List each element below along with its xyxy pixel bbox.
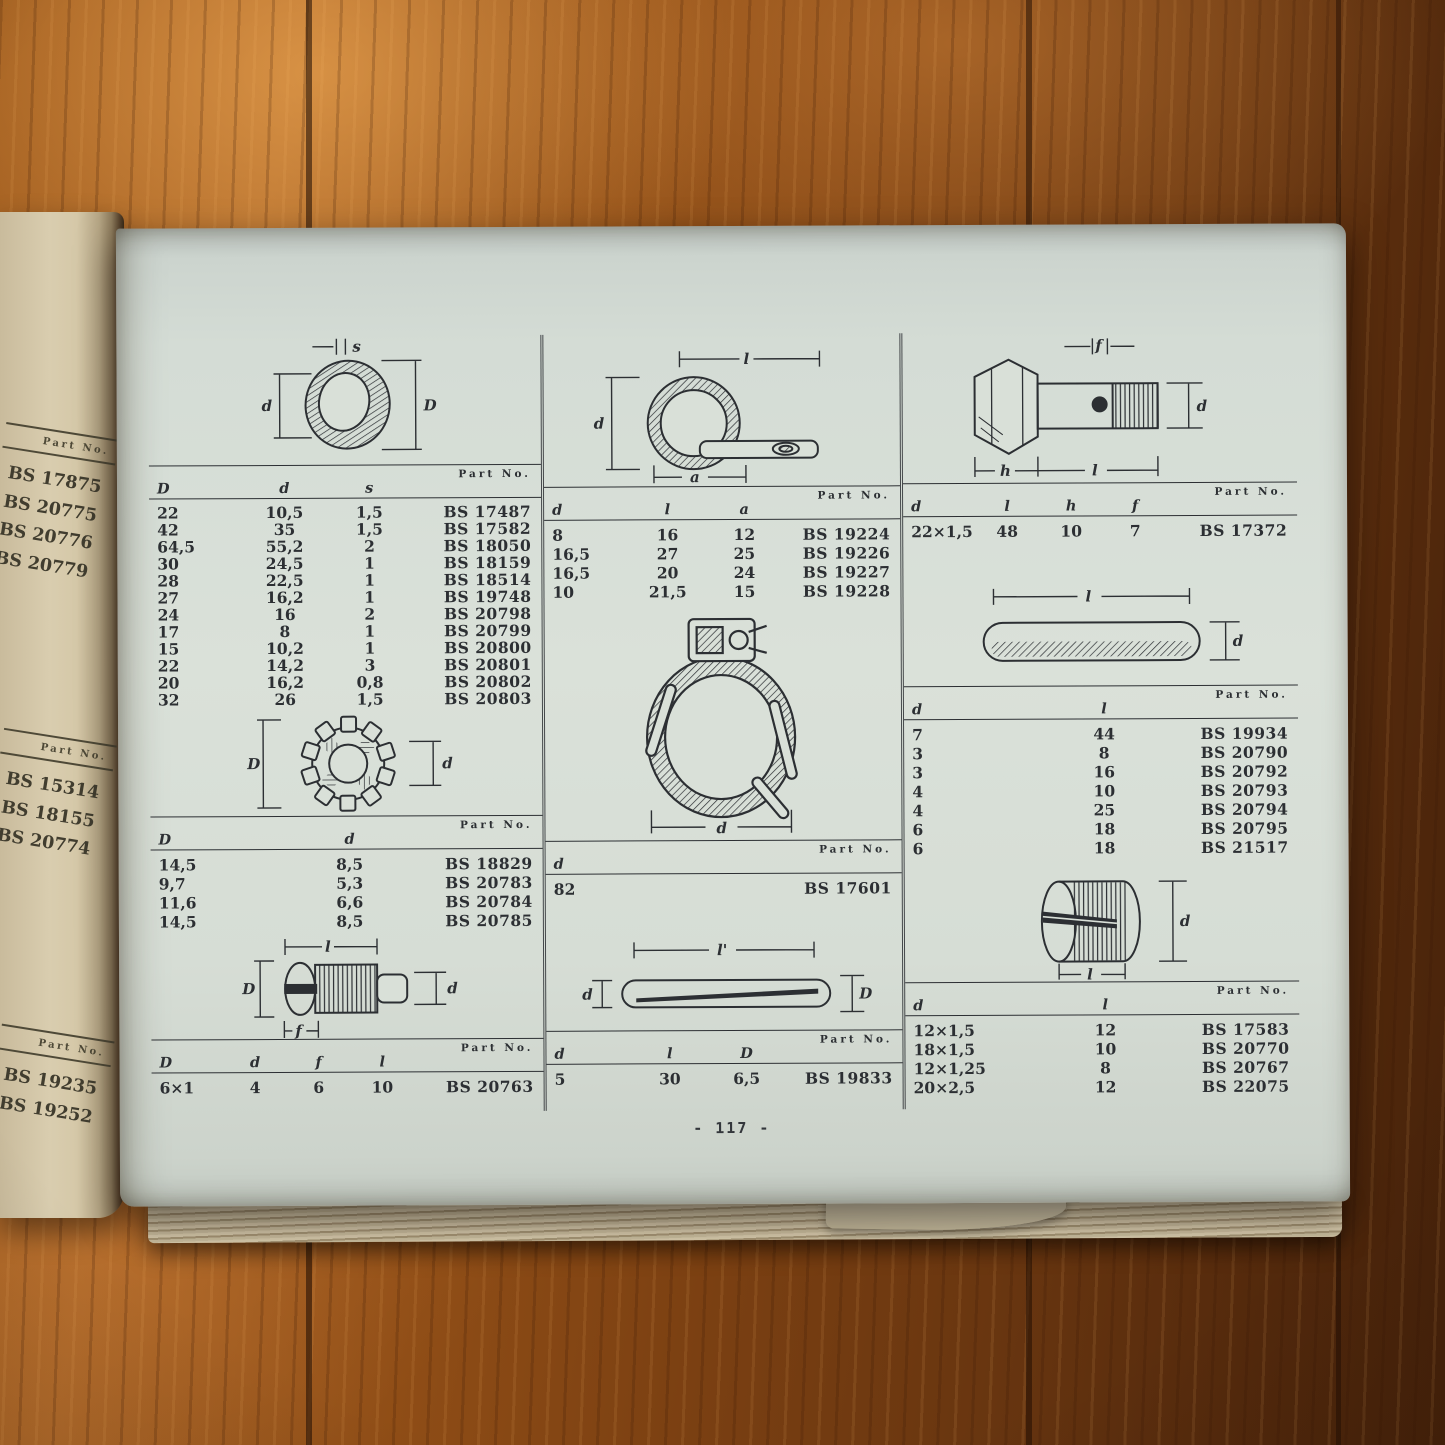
value-cell: 27 (149, 589, 242, 606)
column-letter: l (1041, 998, 1169, 1013)
value-cell: 1 (327, 571, 412, 588)
dim-label-l: l (325, 938, 331, 956)
dim-label-l-prime: l' (717, 941, 727, 959)
table-row: 9,75,3BS 20783 (151, 873, 543, 894)
part-number-cell: BS 20800 (412, 639, 541, 657)
part-number-cell: BS 17487 (412, 503, 541, 521)
part-number-cell: BS 20767 (1170, 1058, 1300, 1078)
value-cell: 16,2 (242, 589, 327, 606)
part-no-header: Part No. (817, 489, 890, 501)
table-row: 744BS 19934 (904, 724, 1298, 745)
figure-round-pin: l d (945, 580, 1255, 686)
table-clips: dlaPart No.81612BS 1922416,52725BS 19226… (544, 485, 900, 602)
table-screws: DdflPart No.6×14610BS 20763 (151, 1038, 543, 1098)
value-cell: 8 (1042, 1058, 1170, 1078)
part-number-cell: BS 19227 (783, 562, 901, 582)
value-cell: 17 (150, 623, 243, 640)
dim-label-d: d (1233, 632, 1244, 650)
column-letter: D (151, 1056, 223, 1070)
part-number-cell: BS 19833 (785, 1068, 903, 1088)
value-cell: 22×1,5 (903, 522, 975, 541)
table-header: DdsPart No. (149, 464, 541, 500)
value-cell: 10 (544, 582, 629, 601)
value-cell: 1 (327, 639, 412, 656)
figure-slotted-screw: l D d f (222, 934, 472, 1039)
part-number-cell: BS 20784 (413, 892, 542, 912)
part-number-cell: BS 20783 (413, 873, 542, 893)
table-row: 316BS 20792 (904, 762, 1298, 783)
value-cell: 48 (975, 522, 1039, 541)
part-number-cell: BS 19934 (1168, 724, 1298, 744)
figure-washer: s d D (219, 335, 470, 462)
part-number-cell: BS 19748 (412, 588, 541, 606)
table-row: 82BS 17601 (546, 878, 902, 899)
table-row: 425BS 20794 (904, 800, 1298, 821)
table-washers: DdsPart No.2210,51,5BS 1748742351,5BS 17… (149, 464, 542, 709)
column-letter: h (1039, 499, 1103, 513)
value-cell: 14,5 (151, 855, 286, 875)
value-cell: 10,5 (242, 504, 327, 521)
value-cell: 30 (149, 555, 242, 572)
table-row: 16,52024BS 19227 (544, 562, 900, 583)
part-no-header: Part No. (1214, 486, 1287, 498)
value-cell: 14,2 (243, 657, 328, 674)
value-cell: 32 (150, 691, 243, 708)
value-cell: 2 (327, 537, 412, 554)
value-cell: 20 (150, 674, 243, 691)
column-middle: l d a dlaPart No.81612BS 1922416,52725BS… (543, 333, 902, 1089)
part-number-cell: BS 20793 (1168, 781, 1298, 801)
value-cell: 6 (904, 820, 1040, 840)
column-letter: l (631, 1047, 708, 1061)
value-cell: 18 (1041, 838, 1169, 858)
column-letter: d (242, 482, 327, 496)
part-number-cell: BS 20792 (1168, 762, 1298, 782)
dim-label-f: f (1094, 336, 1104, 354)
value-cell: 11,6 (151, 893, 286, 913)
table-header: dlhfPart No. (903, 482, 1297, 518)
table-bolts: dlhfPart No.22×1,548107BS 17372 (903, 482, 1297, 542)
part-number-cell: BS 19226 (783, 543, 901, 563)
value-cell: 15 (706, 582, 783, 601)
value-cell: 3 (327, 656, 412, 673)
part-no-header: Part No. (1217, 985, 1290, 997)
column-letter: l (1040, 702, 1168, 717)
part-number-cell: BS 19224 (783, 524, 901, 544)
value-cell: 20×2,5 (906, 1078, 1042, 1098)
table-lock-washers: DdPart No.14,58,5BS 188299,75,3BS 207831… (150, 815, 542, 932)
table-row: 38BS 20790 (904, 743, 1298, 764)
table-header: dPart No. (546, 839, 902, 875)
value-cell: 12 (706, 525, 783, 544)
dim-label-l: l (1085, 587, 1091, 605)
value-cell: 64,5 (149, 538, 242, 555)
table-row: 14,58,5BS 18829 (151, 854, 543, 875)
value-cell: 8 (1040, 743, 1168, 763)
dim-label-a: a (690, 468, 700, 484)
value-cell: 14,5 (151, 912, 286, 932)
column-letter: D (151, 833, 286, 848)
column-letter: d (544, 503, 629, 517)
part-no-header: Part No. (820, 1033, 893, 1045)
table-header: dlPart No. (905, 981, 1299, 1017)
value-cell: 24,5 (242, 555, 327, 572)
column-letter: D (149, 482, 242, 496)
value-cell: 8,5 (286, 854, 413, 874)
value-cell: 21,5 (629, 582, 706, 601)
dim-label-D: D (858, 984, 872, 1002)
page-number: - 117 - (622, 1119, 842, 1138)
value-cell: 1 (327, 588, 412, 605)
value-cell: 12×1,5 (905, 1021, 1041, 1041)
value-cell: 20 (629, 563, 706, 582)
value-cell: 1,5 (328, 690, 413, 707)
table-row: 5306,5BS 19833 (547, 1068, 903, 1089)
part-number-cell: BS 20795 (1168, 819, 1298, 839)
dim-label-f: f (294, 1022, 304, 1039)
value-cell: 10 (351, 1077, 415, 1096)
dim-label-D: D (241, 980, 255, 998)
value-cell: 2 (327, 605, 412, 622)
dim-label-d: d (582, 986, 593, 1004)
column-left: s d D DdsPart No.2210,51,5BS 1748742351,… (148, 335, 543, 1098)
value-cell: 7 (904, 725, 1040, 745)
table-clamps: dPart No.82BS 17601 (546, 839, 902, 899)
part-no-header: Part No. (819, 843, 892, 855)
table-row: 618BS 20795 (904, 819, 1298, 840)
part-number-list: BS 17875BS 20775BS 20776BS 20779 (0, 448, 115, 588)
part-no-header: Part No. (1215, 689, 1288, 701)
table-header: dlPart No. (904, 685, 1298, 721)
value-cell: 4 (223, 1078, 287, 1097)
dim-label-l: l (1087, 965, 1093, 982)
value-cell: 10,2 (243, 640, 328, 657)
table-row: 1021,515BS 19228 (544, 581, 900, 602)
part-number-cell: BS 20785 (414, 911, 543, 931)
value-cell: 27 (629, 544, 706, 563)
dim-label-l: l (1092, 461, 1098, 479)
strip-section: Part No. BS 17875BS 20775BS 20776BS 2077… (0, 422, 119, 588)
value-cell: 16,5 (544, 544, 629, 563)
column-letter: d (546, 857, 785, 872)
value-cell: 10 (1040, 781, 1168, 801)
value-cell: 8 (242, 623, 327, 640)
part-number-cell: BS 18159 (412, 554, 541, 572)
value-cell: 1 (327, 622, 412, 639)
part-number-cell: BS 21517 (1169, 838, 1299, 858)
table-row: 32261,5BS 20803 (150, 690, 542, 709)
value-cell: 7 (1103, 521, 1167, 540)
photo-of-parts-catalog-book: Part No. BS 17875BS 20775BS 20776BS 2077… (0, 0, 1445, 1445)
value-cell: 10 (1039, 521, 1103, 540)
figure-slotted-plug: d l (977, 861, 1228, 982)
column-letter: D (708, 1047, 785, 1061)
catalog-page: s d D DdsPart No.2210,51,5BS 1748742351,… (116, 223, 1350, 1206)
part-number-cell: BS 20802 (412, 673, 541, 691)
part-number-cell: BS 18050 (412, 537, 541, 555)
column-letter: f (287, 1056, 351, 1070)
part-number-cell: BS 20794 (1168, 800, 1298, 820)
value-cell: 15 (150, 640, 243, 657)
dim-label-d: d (1180, 912, 1191, 930)
value-cell: 1 (327, 554, 412, 571)
table-row: 12×1,258BS 20767 (906, 1058, 1300, 1079)
dim-label-d: d (262, 397, 273, 415)
part-number-cell: BS 22075 (1170, 1077, 1300, 1097)
part-number-cell: BS 20798 (412, 605, 541, 623)
table-row: 618BS 21517 (905, 838, 1299, 859)
table-header: DdflPart No. (151, 1038, 543, 1074)
figure-p-clip: l d a (581, 342, 862, 483)
value-cell: 22,5 (242, 572, 327, 589)
value-cell: 44 (1040, 724, 1168, 744)
figure-flat-pin: l' d D (574, 929, 874, 1030)
value-cell: 26 (243, 691, 328, 708)
value-cell: 8,5 (286, 911, 413, 931)
value-cell: 12 (1042, 1077, 1170, 1097)
value-cell: 6 (287, 1078, 351, 1097)
column-letter: d (546, 1047, 631, 1061)
column-letter: s (327, 481, 412, 495)
part-no-header: Part No. (460, 819, 533, 831)
value-cell: 1,5 (327, 503, 412, 520)
value-cell: 10 (1041, 1039, 1169, 1059)
table-header: DdPart No. (150, 815, 542, 851)
dim-label-l: l (743, 350, 749, 368)
dim-label-d: d (716, 819, 727, 837)
part-number-cell: BS 20799 (412, 622, 541, 640)
dim-label-d: d (594, 415, 605, 433)
column-letter: d (904, 703, 1040, 718)
previous-page-edge: Part No. BS 17875BS 20775BS 20776BS 2077… (0, 212, 124, 1218)
column-right: f d h l dlhfPart No.22×1,548107BS 17372 (902, 332, 1299, 1098)
table-row: 16,52725BS 19226 (544, 543, 900, 564)
value-cell: 6 (905, 839, 1041, 859)
part-number-cell: BS 19228 (783, 581, 901, 601)
dim-label-d: d (1197, 397, 1208, 415)
dim-label-d: d (442, 754, 453, 772)
value-cell: 82 (546, 879, 785, 899)
table-row: 410BS 20793 (904, 781, 1298, 802)
value-cell: 28 (149, 572, 242, 589)
table-row: 14,58,5BS 20785 (151, 911, 543, 932)
table-row: 18×1,510BS 20770 (905, 1039, 1299, 1060)
part-number-cell: BS 20770 (1169, 1039, 1299, 1059)
figure-banjo-bolt: f d h l (944, 332, 1255, 483)
table-row: 20×2,512BS 22075 (906, 1077, 1300, 1098)
column-letter: d (223, 1056, 287, 1070)
part-number-cell: BS 18514 (412, 571, 541, 589)
value-cell: 12×1,25 (906, 1059, 1042, 1079)
part-number-cell: BS 20790 (1168, 743, 1298, 763)
value-cell: 4 (904, 801, 1040, 821)
table-header: dlDPart No. (546, 1029, 902, 1065)
part-number-cell: BS 18829 (413, 854, 542, 874)
value-cell: 30 (631, 1069, 708, 1088)
dim-label-D: D (423, 396, 437, 414)
value-cell: 16 (629, 525, 706, 544)
value-cell: 25 (1040, 800, 1168, 820)
table-plugs: dlPart No.12×1,512BS 1758318×1,510BS 207… (905, 981, 1299, 1098)
value-cell: 6,5 (708, 1069, 785, 1088)
column-letter: d (286, 832, 413, 847)
value-cell: 8 (544, 525, 629, 544)
table-header: dlaPart No. (544, 485, 900, 521)
table-pins-mid: dlDPart No.5306,5BS 19833 (546, 1029, 902, 1089)
strip-section: Part No. BS 15314BS 18155BS 20774 (0, 728, 117, 866)
page-content: s d D DdsPart No.2210,51,5BS 1748742351,… (148, 332, 1301, 1113)
part-number-list: BS 15314BS 18155BS 20774 (0, 754, 113, 866)
value-cell: 12 (1041, 1020, 1169, 1040)
value-cell: 55,2 (242, 538, 327, 555)
column-letter: l (975, 500, 1039, 514)
value-cell: 4 (904, 782, 1040, 802)
dim-label-h: h (1000, 462, 1011, 480)
table-row: 11,66,6BS 20784 (151, 892, 543, 913)
value-cell: 16 (1040, 762, 1168, 782)
value-cell: 5 (547, 1069, 632, 1088)
value-cell: 6×1 (152, 1078, 224, 1097)
column-letter: l (350, 1055, 414, 1069)
table-pins-right: dlPart No.744BS 1993438BS 20790316BS 207… (904, 685, 1299, 859)
part-no-header: Part No. (458, 468, 531, 480)
dim-label-d: d (447, 979, 458, 997)
part-number-cell: BS 17582 (412, 520, 541, 538)
value-cell: 3 (904, 744, 1040, 764)
value-cell: 35 (242, 521, 327, 538)
value-cell: 16 (242, 606, 327, 623)
column-letter: d (903, 500, 975, 514)
value-cell: 24 (706, 563, 783, 582)
part-number-cell: BS 17583 (1169, 1020, 1299, 1040)
part-number-cell: BS 20763 (414, 1077, 543, 1097)
value-cell: 25 (706, 544, 783, 563)
part-number-cell: BS 20803 (413, 690, 542, 708)
table-row: 6×14610BS 20763 (152, 1077, 544, 1098)
part-number-cell: BS 20801 (412, 656, 541, 674)
column-letter: f (1103, 499, 1167, 513)
value-cell: 24 (150, 606, 243, 623)
table-row: 81612BS 19224 (544, 524, 900, 545)
figure-lock-washer: D d (221, 711, 471, 816)
value-cell: 3 (904, 763, 1040, 783)
column-letter: l (629, 503, 706, 517)
value-cell: 22 (149, 504, 242, 521)
value-cell: 42 (149, 521, 242, 538)
value-cell: 18 (1040, 819, 1168, 839)
value-cell: 22 (150, 657, 243, 674)
part-number-cell: BS 17372 (1167, 521, 1297, 541)
part-no-header: Part No. (461, 1042, 534, 1054)
strip-section: Part No. BS 19235BS 19252 (0, 1024, 115, 1134)
value-cell: 9,7 (151, 874, 286, 894)
part-number-cell: BS 17601 (784, 878, 902, 898)
column-letter: a (706, 503, 783, 517)
dim-label-s: s (352, 338, 361, 356)
value-cell: 1,5 (327, 520, 412, 537)
value-cell: 0,8 (328, 673, 413, 690)
table-row: 22×1,548107BS 17372 (903, 521, 1297, 542)
value-cell: 16,2 (243, 674, 328, 691)
table-row: 12×1,512BS 17583 (905, 1020, 1299, 1041)
value-cell: 6,6 (286, 892, 413, 912)
value-cell: 16,5 (544, 563, 629, 582)
dim-label-D: D (246, 755, 260, 773)
value-cell: 5,3 (286, 873, 413, 893)
figure-hose-clamp: d (593, 604, 854, 840)
column-letter: d (905, 999, 1041, 1014)
value-cell: 18×1,5 (905, 1040, 1041, 1060)
